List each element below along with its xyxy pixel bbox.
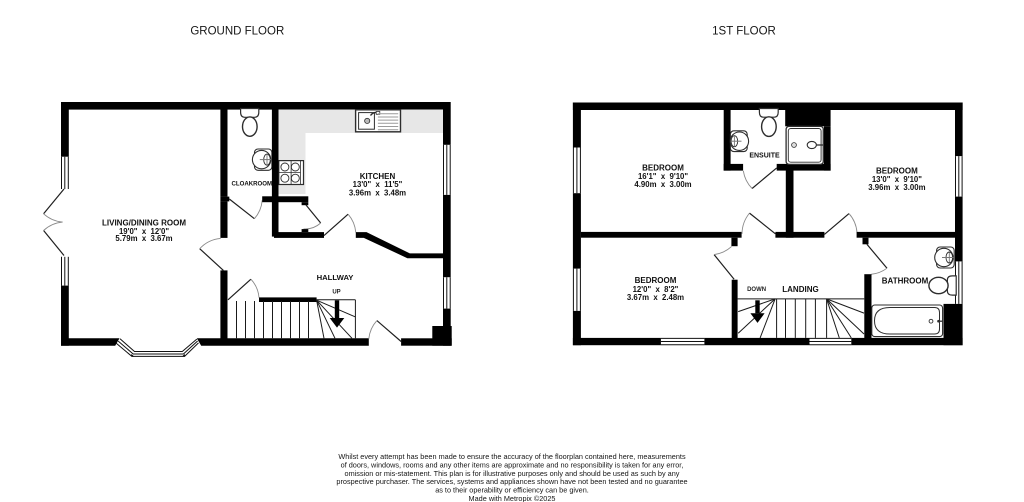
svg-text:DOWN: DOWN — [747, 287, 766, 293]
svg-text:3.96m x 3.00m: 3.96m x 3.00m — [868, 183, 925, 192]
svg-text:LIVING/DINING ROOM: LIVING/DINING ROOM — [102, 218, 186, 227]
svg-text:LANDING: LANDING — [782, 285, 818, 294]
svg-text:BATHROOM: BATHROOM — [882, 277, 929, 286]
svg-text:HALLWAY: HALLWAY — [317, 273, 354, 282]
svg-text:3.67m x 2.48m: 3.67m x 2.48m — [627, 293, 684, 302]
svg-text:1ST FLOOR: 1ST FLOOR — [712, 25, 776, 37]
svg-text:UP: UP — [332, 290, 340, 296]
svg-text:5.79m x 3.67m: 5.79m x 3.67m — [115, 234, 172, 243]
svg-text:GROUND FLOOR: GROUND FLOOR — [190, 25, 284, 37]
svg-text:Made with Metropix ©2025: Made with Metropix ©2025 — [469, 494, 556, 502]
svg-text:CLOAKROOM: CLOAKROOM — [231, 181, 272, 188]
svg-text:4.90m x 3.00m: 4.90m x 3.00m — [634, 180, 691, 189]
svg-text:BEDROOM: BEDROOM — [635, 276, 677, 285]
svg-text:3.96m x 3.48m: 3.96m x 3.48m — [349, 189, 406, 198]
svg-text:ENSUITE: ENSUITE — [749, 153, 780, 160]
